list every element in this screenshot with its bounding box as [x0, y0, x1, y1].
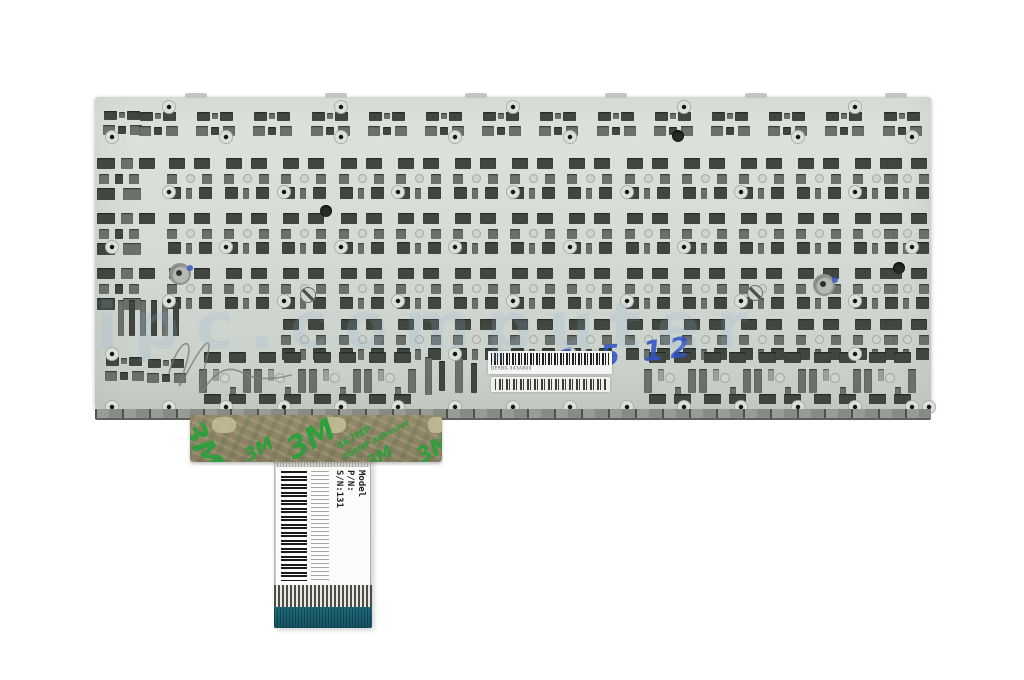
- cutout: [652, 213, 668, 224]
- cutout: [660, 284, 670, 294]
- rivet-hole: [108, 243, 116, 251]
- cable-label-pn: P/N:: [344, 470, 355, 582]
- cutout: [115, 229, 123, 239]
- key-cutout-cluster: [396, 268, 442, 310]
- cutout: [644, 188, 650, 199]
- cutout: [441, 113, 447, 119]
- cutout: [586, 298, 592, 309]
- cutout: [510, 174, 520, 184]
- cutout: [775, 373, 785, 383]
- cutout: [243, 174, 252, 183]
- cutout: [853, 174, 863, 184]
- cutout: [472, 188, 478, 199]
- cutout: [224, 229, 234, 239]
- cutout: [455, 158, 471, 169]
- cutout: [300, 188, 306, 199]
- key-cutout-cluster: [453, 158, 499, 200]
- cutout: [472, 298, 478, 309]
- cutout: [199, 297, 212, 309]
- cutout: [423, 268, 439, 279]
- rivet-hole: [165, 297, 173, 305]
- cutout: [907, 112, 920, 121]
- cutout: [472, 243, 478, 254]
- cutout: [652, 268, 668, 279]
- ribbon-cable: Model P/N: S/N:131: [274, 455, 372, 628]
- cutout: [916, 242, 929, 254]
- cutout: [743, 369, 751, 393]
- key-cutout-cluster: [105, 357, 145, 383]
- cutout: [709, 158, 725, 169]
- key-cutout-cluster: [167, 213, 213, 255]
- cutout: [316, 174, 326, 184]
- cutout: [374, 284, 384, 294]
- key-cutout-cluster: [339, 268, 385, 310]
- cutout: [701, 243, 707, 254]
- cutout: [281, 229, 291, 239]
- key-cutout-cluster: [167, 158, 213, 200]
- key-cutout-cluster: [224, 213, 270, 255]
- cutout: [701, 298, 707, 309]
- cutout: [254, 112, 267, 121]
- cutout: [251, 213, 267, 224]
- cutout: [815, 174, 824, 183]
- cutout: [759, 352, 776, 363]
- key-cutout-cluster: [453, 268, 499, 310]
- cutout: [625, 174, 635, 184]
- cutout: [869, 394, 886, 404]
- cutout: [118, 300, 124, 336]
- rivet-hole: [737, 188, 745, 196]
- cutout: [251, 158, 267, 169]
- plate-tab: [745, 93, 767, 98]
- rivet-hole: [851, 188, 859, 196]
- key-cutout-cluster: [883, 112, 923, 138]
- cutout: [903, 174, 912, 183]
- cutout: [884, 112, 897, 121]
- rivet-hole: [451, 133, 459, 141]
- cutout: [488, 284, 498, 294]
- cutout: [483, 112, 496, 121]
- rivet-hole: [222, 133, 230, 141]
- cutout: [878, 369, 884, 381]
- cutout: [916, 348, 929, 360]
- cutout: [919, 335, 929, 345]
- cutout: [908, 369, 916, 393]
- cutout: [840, 127, 848, 135]
- cutout: [453, 229, 463, 239]
- cutout: [155, 113, 161, 119]
- cutout: [741, 213, 757, 224]
- cutout: [612, 127, 620, 135]
- cutout: [828, 242, 841, 254]
- cutout: [774, 284, 784, 294]
- cutout: [849, 112, 862, 121]
- cutout: [798, 213, 814, 224]
- cutout: [226, 213, 242, 224]
- cutout: [415, 284, 424, 293]
- cutout: [211, 127, 219, 135]
- cutout: [823, 158, 839, 169]
- cutout: [853, 229, 863, 239]
- cutout: [398, 158, 414, 169]
- cutout: [872, 298, 878, 309]
- cutout: [313, 187, 326, 199]
- cutout: [766, 319, 782, 330]
- cable-spec-label: Model P/N: S/N:131: [276, 467, 370, 585]
- cutout: [529, 284, 538, 293]
- cutout: [97, 213, 115, 224]
- cutout: [884, 174, 894, 184]
- cutout: [308, 158, 324, 169]
- cutout: [626, 242, 639, 254]
- cutout: [886, 158, 902, 169]
- cutout: [454, 187, 467, 199]
- cutout: [243, 229, 252, 238]
- cutout: [154, 127, 162, 135]
- cutout: [599, 187, 612, 199]
- cutout: [758, 335, 767, 344]
- cutout: [423, 319, 439, 330]
- cutout: [97, 298, 115, 310]
- cutout: [194, 213, 210, 224]
- cutout: [828, 187, 841, 199]
- key-cutout-cluster: [739, 158, 785, 200]
- cutout: [916, 187, 929, 199]
- cutout: [129, 300, 135, 336]
- cutout: [717, 335, 727, 345]
- cutout: [720, 373, 730, 383]
- plate-barcode-label: DERB0-343A800: [488, 351, 612, 374]
- cutout: [831, 335, 841, 345]
- cutout: [383, 127, 391, 135]
- cutout: [769, 112, 782, 121]
- cutout: [774, 174, 784, 184]
- cutout: [104, 111, 117, 120]
- cutout: [199, 187, 212, 199]
- cutout: [555, 113, 561, 119]
- cutout: [729, 352, 746, 363]
- cutout: [652, 319, 668, 330]
- cutout: [855, 213, 871, 224]
- cutout: [374, 335, 384, 345]
- cutout: [529, 298, 535, 309]
- cutout: [371, 187, 384, 199]
- cutout: [758, 229, 767, 238]
- cutout: [529, 335, 538, 344]
- cutout: [594, 319, 610, 330]
- cutout: [624, 126, 636, 136]
- cutout: [644, 284, 653, 293]
- cutout: [684, 213, 700, 224]
- cutout: [796, 284, 806, 294]
- cutout: [826, 112, 839, 121]
- cutout: [739, 229, 749, 239]
- cutout: [682, 284, 692, 294]
- cutout: [701, 188, 707, 199]
- rivet-hole: [851, 297, 859, 305]
- cutout: [99, 174, 109, 184]
- 3m-logo: 3M: [413, 431, 442, 462]
- key-cutout-cluster: [196, 112, 236, 138]
- key-cutout-cluster: [682, 213, 728, 255]
- cutout: [251, 268, 267, 279]
- tape-patch: [428, 417, 442, 433]
- cutout: [872, 188, 878, 199]
- cutout: [439, 361, 445, 391]
- cutout: [796, 174, 806, 184]
- cutout: [852, 126, 864, 136]
- cutout: [140, 112, 153, 121]
- cable-stiffener: [274, 607, 372, 628]
- cutout: [717, 174, 727, 184]
- cutout: [792, 112, 805, 121]
- cutout: [335, 112, 348, 121]
- cutout: [482, 126, 494, 136]
- cutout: [358, 229, 367, 238]
- cutout: [796, 229, 806, 239]
- cutout: [713, 369, 719, 381]
- cutout: [371, 242, 384, 254]
- cutout: [115, 174, 123, 184]
- cutout: [797, 242, 810, 254]
- cutout: [735, 112, 748, 121]
- cutout: [798, 268, 814, 279]
- cutout: [903, 298, 909, 309]
- cutout: [529, 243, 535, 254]
- cutout: [759, 394, 776, 404]
- cutout: [243, 188, 249, 199]
- cutout: [823, 369, 829, 381]
- cutout: [339, 174, 349, 184]
- rivet-hole: [222, 243, 230, 251]
- cutout: [815, 335, 824, 344]
- cutout: [586, 229, 595, 238]
- cutout: [186, 188, 192, 199]
- cutout: [166, 126, 178, 136]
- cutout: [256, 187, 269, 199]
- cutout: [798, 369, 806, 393]
- cutout: [449, 112, 462, 121]
- key-cutout-cluster: [625, 213, 671, 255]
- cutout: [741, 268, 757, 279]
- cutout: [894, 352, 911, 363]
- cutout: [586, 243, 592, 254]
- cutout: [282, 242, 295, 254]
- cutout: [497, 127, 505, 135]
- cutout: [758, 243, 764, 254]
- cutout: [455, 213, 471, 224]
- cutout: [540, 112, 553, 121]
- cutout: [480, 268, 496, 279]
- cutout: [738, 126, 750, 136]
- rivet-hole: [165, 188, 173, 196]
- cutout: [408, 369, 416, 393]
- rivet-hole: [851, 103, 859, 111]
- cutout: [654, 126, 666, 136]
- cutout: [594, 268, 610, 279]
- cutout: [798, 319, 814, 330]
- rivet-hole: [451, 243, 459, 251]
- cutout: [739, 174, 749, 184]
- cutout: [766, 268, 782, 279]
- cutout: [766, 158, 782, 169]
- blue-paint-dot: [832, 277, 838, 283]
- cutout: [567, 284, 577, 294]
- cutout: [220, 112, 233, 121]
- cutout: [542, 242, 555, 254]
- cutout: [415, 335, 424, 344]
- cutout: [308, 268, 324, 279]
- keyboard-backplate: 1 5 12 DERB0-343A800: [95, 97, 931, 409]
- cutout: [831, 174, 841, 184]
- cutout: [480, 213, 496, 224]
- cutout: [472, 229, 481, 238]
- rivet-hole: [680, 103, 688, 111]
- cutout: [281, 284, 291, 294]
- key-cutout-cluster: [625, 268, 671, 310]
- cutout: [683, 187, 696, 199]
- cutout: [529, 188, 535, 199]
- cutout: [366, 268, 382, 279]
- cutout: [186, 229, 195, 238]
- cutout: [428, 242, 441, 254]
- cutout: [121, 358, 127, 364]
- rivet-hole: [908, 243, 916, 251]
- cutout: [358, 298, 364, 309]
- cutout: [911, 268, 927, 279]
- cutout: [916, 297, 929, 309]
- cutout: [506, 112, 519, 121]
- cutout: [815, 298, 821, 309]
- cutout: [569, 213, 585, 224]
- cutout: [396, 335, 406, 345]
- plate-tab: [325, 93, 347, 98]
- cutout: [831, 229, 841, 239]
- cutout: [903, 188, 909, 199]
- cutout: [311, 126, 323, 136]
- cutout: [657, 242, 670, 254]
- blue-paint-dot: [187, 265, 193, 271]
- cutout: [825, 126, 837, 136]
- cutout: [395, 126, 407, 136]
- cutout: [358, 243, 364, 254]
- cutout: [480, 319, 496, 330]
- cutout: [326, 127, 334, 135]
- cutout: [709, 268, 725, 279]
- cutout: [768, 126, 780, 136]
- key-cutout-cluster: [453, 213, 499, 255]
- key-cutout-cluster: [809, 352, 861, 404]
- rivet-hole: [908, 133, 916, 141]
- cutout: [563, 112, 576, 121]
- cutout: [903, 335, 912, 344]
- tape-patch: [212, 417, 236, 433]
- cutout: [512, 268, 528, 279]
- cutout: [884, 335, 894, 345]
- cutout: [99, 229, 109, 239]
- cutout: [602, 284, 612, 294]
- cutout: [774, 335, 784, 345]
- plate-tab: [605, 93, 627, 98]
- cutout: [485, 187, 498, 199]
- cutout: [783, 127, 791, 135]
- cutout: [396, 229, 406, 239]
- key-cutout-cluster: [625, 158, 671, 200]
- cutout: [119, 112, 125, 118]
- cutout: [194, 268, 210, 279]
- cutout: [281, 174, 291, 184]
- cutout: [704, 352, 721, 363]
- cutout: [625, 229, 635, 239]
- rivet-hole: [280, 297, 288, 305]
- cutout: [169, 213, 185, 224]
- cutout: [129, 284, 139, 294]
- cutout: [453, 174, 463, 184]
- cutout: [627, 268, 643, 279]
- key-cutout-cluster: [482, 112, 522, 138]
- cutout: [415, 229, 424, 238]
- cutout: [202, 284, 212, 294]
- cutout: [283, 268, 299, 279]
- key-cutout-cluster: [139, 112, 179, 138]
- cutout: [529, 229, 538, 238]
- cutout: [129, 174, 139, 184]
- cutout: [132, 371, 144, 381]
- cutout: [396, 284, 406, 294]
- cutout: [699, 369, 707, 393]
- cutout: [644, 369, 652, 393]
- cutout: [709, 213, 725, 224]
- cutout: [327, 113, 333, 119]
- cutout: [599, 297, 612, 309]
- cutout: [714, 187, 727, 199]
- cutout: [129, 229, 139, 239]
- key-cutout-cluster: [97, 158, 157, 200]
- cutout: [431, 229, 441, 239]
- cutout: [453, 335, 463, 345]
- key-cutout-cluster: [339, 158, 385, 200]
- key-cutout-cluster: [510, 213, 556, 255]
- rivet-hole: [623, 188, 631, 196]
- cutout: [269, 113, 275, 119]
- cutout: [485, 242, 498, 254]
- cutout: [366, 158, 382, 169]
- barcode: [311, 471, 329, 581]
- cutout: [488, 229, 498, 239]
- rivet-hole: [394, 297, 402, 305]
- cutout: [358, 174, 367, 183]
- key-cutout-cluster: [311, 112, 351, 138]
- alignment-hole: [320, 205, 332, 217]
- cutout: [717, 229, 727, 239]
- cutout: [510, 335, 520, 345]
- cutout: [649, 394, 666, 404]
- cutout: [488, 335, 498, 345]
- cutout: [398, 319, 414, 330]
- cutout: [398, 213, 414, 224]
- cutout: [855, 268, 871, 279]
- cutout: [454, 297, 467, 309]
- key-cutout-cluster: [368, 112, 408, 138]
- rivet-hole: [108, 350, 116, 358]
- cutout: [911, 213, 927, 224]
- cutout: [597, 126, 609, 136]
- cutout: [683, 297, 696, 309]
- cutout: [396, 174, 406, 184]
- cutout: [313, 242, 326, 254]
- cutout: [545, 229, 555, 239]
- cutout: [139, 158, 155, 169]
